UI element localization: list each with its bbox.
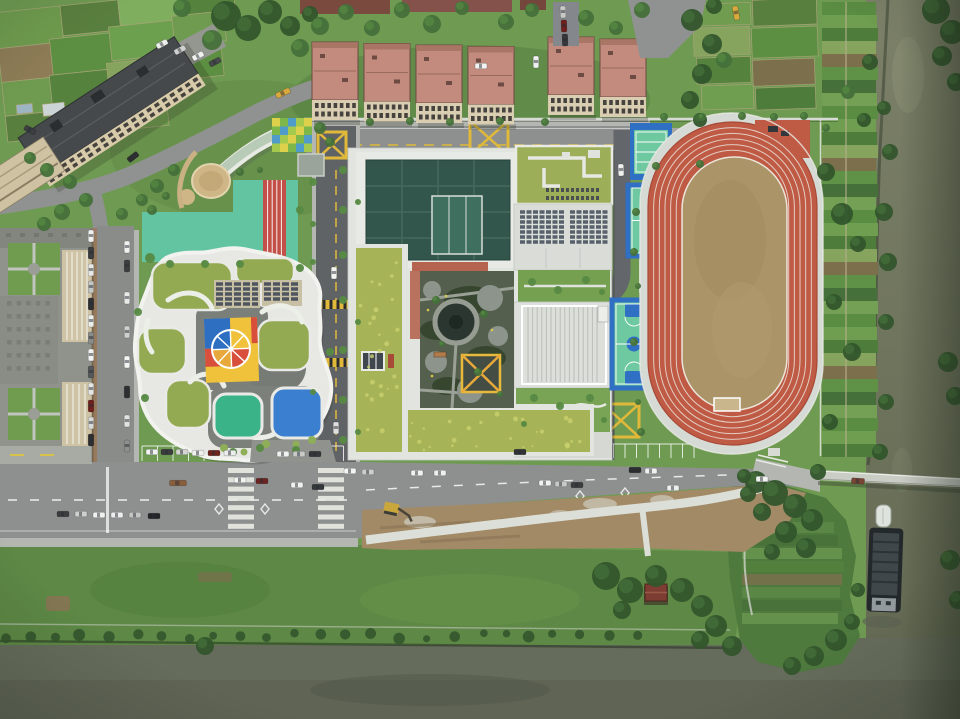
vignette-overlay [0, 0, 960, 719]
scene-canvas [0, 0, 960, 719]
aerial-photo-school-campus [0, 0, 960, 719]
